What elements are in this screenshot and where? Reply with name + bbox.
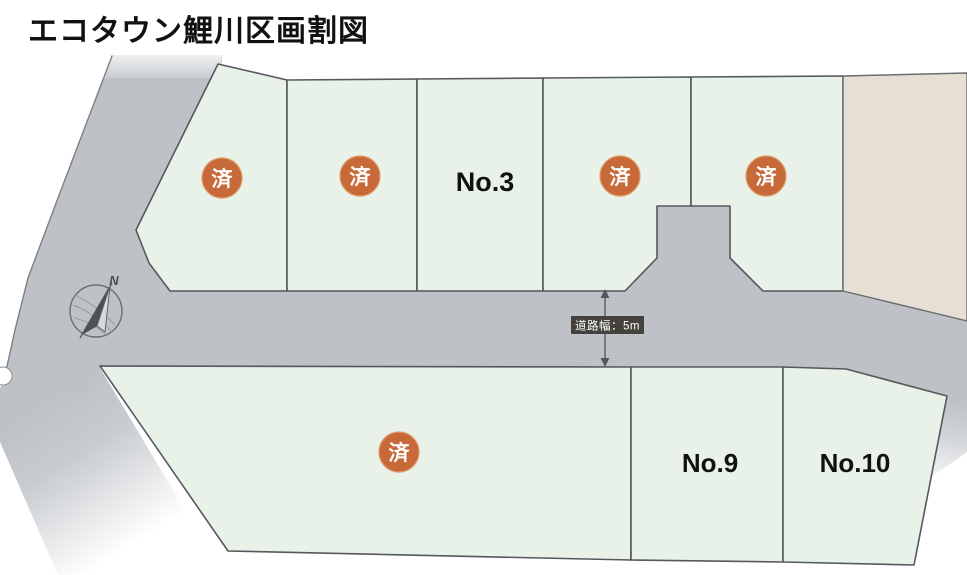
neighbor-parcel <box>843 73 967 321</box>
sold-badge-label: 済 <box>756 165 778 189</box>
plot-map-page: エコタウン鯉川区画割図 <box>0 0 967 575</box>
plot-map: 済 済 済 済 済 No.3 No.9 No.10 道路幅：5m <box>0 0 967 575</box>
lot-no3-label: No.3 <box>456 167 515 197</box>
sold-badge-label: 済 <box>350 165 372 189</box>
lot-no9-label: No.9 <box>682 448 738 478</box>
lot-no10-label: No.10 <box>820 448 891 478</box>
sold-badge-lot-2: 済 <box>340 156 380 196</box>
sold-badge-label: 済 <box>610 165 632 189</box>
road-top-fade <box>104 55 222 78</box>
lot-8-sold <box>100 366 631 560</box>
sold-badge-lot-4: 済 <box>600 156 640 196</box>
sold-badge-label: 済 <box>212 167 234 191</box>
north-label: N <box>109 273 119 288</box>
road-width-label: 道路幅：5m <box>575 319 640 333</box>
sold-badge-lot-1: 済 <box>202 158 242 198</box>
sold-badge-label: 済 <box>389 441 411 465</box>
sold-badge-lot-8: 済 <box>379 432 419 472</box>
sold-badge-lot-5: 済 <box>746 156 786 196</box>
